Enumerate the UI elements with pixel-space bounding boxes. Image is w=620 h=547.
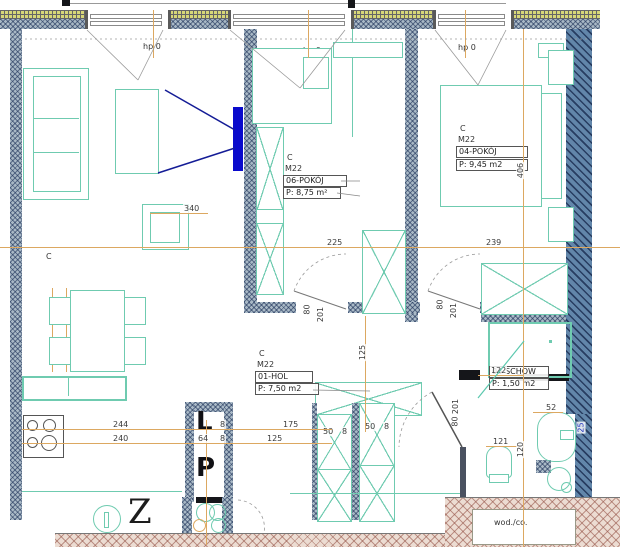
- window-swing-lines: [87, 30, 163, 80]
- dim-wardrobe: 8: [341, 427, 348, 436]
- burner: [43, 419, 56, 432]
- dimension-marker: [348, 0, 355, 8]
- shaft-wall-left: [185, 402, 194, 502]
- wardrobe-06: [256, 127, 284, 211]
- nightstand: [548, 50, 574, 85]
- dim-line: [533, 412, 563, 413]
- kitchen-counter: [22, 376, 127, 401]
- unit-label: M22: [257, 360, 274, 369]
- closet-nook: [362, 230, 406, 314]
- exterior-wall: [508, 19, 600, 29]
- dim-52: 52: [545, 403, 557, 412]
- dimension-line-cropped: [66, 3, 506, 4]
- window-glazing: [438, 21, 505, 26]
- window: [433, 10, 514, 29]
- door-height-label: 201: [449, 302, 458, 319]
- dining-table: [70, 290, 125, 372]
- sofa-divider: [33, 118, 79, 119]
- window-glazing: [90, 14, 162, 19]
- dim-239: 239: [485, 238, 502, 247]
- dim-406: 406: [516, 162, 525, 179]
- exterior-wall: [165, 19, 228, 29]
- dim-340: 340: [183, 204, 200, 213]
- dim-line: [150, 213, 208, 214]
- exterior-wall-insulation: [165, 10, 228, 19]
- dimension-marker: [62, 0, 70, 6]
- window-glazing: [438, 14, 505, 19]
- hall-floor-line: [290, 493, 460, 494]
- window-glazing: [233, 14, 345, 19]
- dim-121: 121: [492, 437, 509, 446]
- axis-line-v: [523, 29, 524, 547]
- toilet-base: [489, 474, 509, 483]
- window-sill-label: hp 0: [458, 43, 476, 52]
- headboard-04: [541, 93, 562, 199]
- kitchen-edge: [22, 491, 182, 492]
- dim-225: 225: [326, 238, 343, 247]
- dim-8: 8: [219, 420, 226, 429]
- axis-line-h: [0, 247, 620, 248]
- door-arc: [428, 254, 480, 291]
- window-glazing: [90, 21, 162, 26]
- dim-120: 120: [516, 441, 525, 458]
- floor-plan: hp 0 hp 0 hp 0 L P wod./co. C: [0, 0, 620, 547]
- dim-125: 125: [266, 434, 283, 443]
- dim-line: [365, 316, 366, 432]
- room-name: 01-HOL: [255, 371, 313, 383]
- room-class: C: [460, 124, 466, 133]
- window-glazing: [233, 21, 345, 26]
- wc-lintel: [196, 497, 222, 503]
- door-height-label: 201: [316, 306, 325, 323]
- axis-line-v: [153, 10, 154, 58]
- dim-175: 175: [282, 420, 299, 429]
- dresser-04: [481, 263, 568, 315]
- dim-line: [22, 429, 332, 430]
- door-arc: [238, 500, 264, 533]
- wc-fixture: [193, 519, 206, 532]
- axis-line-v: [465, 10, 466, 58]
- room-class: C: [259, 349, 265, 358]
- exterior-wall-insulation: [508, 10, 600, 19]
- exterior-wall-insulation: [0, 10, 85, 19]
- armchair-seat: [150, 212, 180, 243]
- dim-64: 64: [197, 434, 209, 443]
- radiator: [333, 42, 403, 58]
- window-sill-label: hp 0: [143, 42, 161, 51]
- room-area: P: 7,50 m2: [255, 383, 319, 395]
- dim-line: [478, 375, 524, 376]
- side-table: [115, 89, 159, 174]
- pillow-06: [303, 57, 329, 89]
- dim-125-hall: 125: [358, 344, 367, 361]
- bath-tap: [560, 430, 574, 440]
- riser-box: [472, 509, 576, 545]
- dim-line: [22, 443, 332, 444]
- dim-25: 25: [577, 421, 586, 433]
- room-class: C: [287, 153, 293, 162]
- hall-lintel: [459, 370, 480, 380]
- dim-8: 8: [219, 434, 226, 443]
- room-class: C: [46, 252, 52, 261]
- exterior-wall: [0, 19, 85, 29]
- shaft-marker-l: L: [196, 409, 213, 435]
- wardrobe-wall-strip: [352, 403, 359, 520]
- door-width-label: 80: [451, 415, 460, 427]
- wall-room06-south: [244, 302, 296, 313]
- counter-divider: [68, 377, 69, 396]
- dim-line: [486, 446, 518, 447]
- shaft-wall-right: [224, 402, 233, 502]
- door-arc: [294, 254, 346, 291]
- unit-label: M22: [458, 135, 475, 144]
- room-area: P: 1,50 m2: [489, 378, 549, 390]
- door-width-label: 80: [303, 303, 312, 315]
- nightstand: [548, 207, 574, 242]
- exterior-wall-insulation: [348, 10, 433, 19]
- bath-door-frame: [460, 447, 466, 500]
- dim-244: 244: [112, 420, 129, 429]
- tv-sight-lines: [158, 90, 235, 173]
- axis-line-v: [308, 10, 309, 58]
- entry-zone-marker: Z: [128, 494, 152, 530]
- dim-wardrobe: 8: [383, 422, 390, 431]
- window-swing-lines: [435, 30, 506, 85]
- wc-fixture: [211, 518, 226, 533]
- unit-label: M22: [285, 164, 302, 173]
- door-width-label: 80: [436, 298, 445, 310]
- dim-122: 122: [490, 366, 507, 375]
- room-area: P: 8,75 m²: [283, 187, 341, 199]
- sofa-divider: [33, 152, 79, 153]
- plant-stem: [104, 512, 109, 528]
- storage-dot: [549, 340, 552, 343]
- bath-sink-drain: [561, 482, 572, 493]
- tv-panel: [233, 107, 243, 171]
- corridor-wall-bottom: [55, 533, 445, 547]
- window: [85, 10, 171, 29]
- hall-wardrobe: [317, 469, 352, 522]
- balcony-window: [228, 10, 354, 29]
- exterior-wall: [348, 19, 433, 29]
- door-height-label: 201: [451, 398, 460, 415]
- exterior-wall-left: [10, 29, 22, 520]
- wall-room06-room04: [405, 29, 418, 322]
- sofa-cushions: [33, 76, 81, 192]
- room-name: 04-POKÓJ: [456, 146, 528, 158]
- wardrobe-06: [256, 223, 284, 295]
- room-name: 06-POKÓJ: [283, 175, 347, 187]
- dim-240: 240: [112, 434, 129, 443]
